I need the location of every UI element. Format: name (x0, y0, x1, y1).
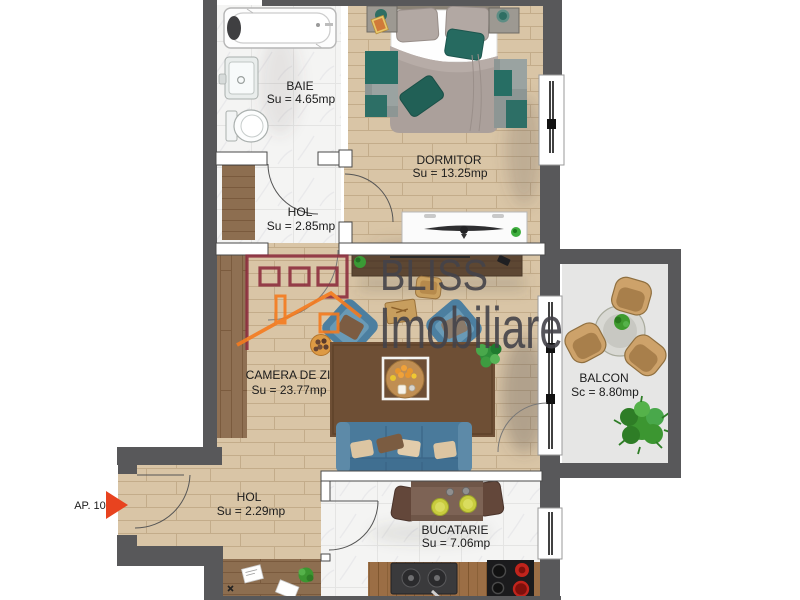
svg-text:Su = 2.85mp: Su = 2.85mp (267, 219, 336, 233)
svg-text:BAIE: BAIE (286, 79, 313, 93)
svg-text:Su = 2.29mp: Su = 2.29mp (217, 504, 286, 518)
svg-text:Su = 4.65mp: Su = 4.65mp (267, 92, 336, 106)
svg-text:CAMERA DE ZI: CAMERA DE ZI (246, 368, 331, 382)
svg-text:Su = 13.25mp: Su = 13.25mp (412, 166, 487, 180)
svg-text:Sc = 8.80mp: Sc = 8.80mp (571, 385, 639, 399)
svg-text:HOL: HOL (288, 205, 313, 219)
svg-text:HOL: HOL (237, 490, 262, 504)
svg-text:BUCATARIE: BUCATARIE (422, 523, 489, 537)
svg-text:BALCON: BALCON (579, 371, 628, 385)
svg-text:DORMITOR: DORMITOR (416, 153, 481, 167)
svg-text:Su = 23.77mp: Su = 23.77mp (251, 383, 326, 397)
svg-text:BLISS: BLISS (380, 251, 488, 300)
svg-text:AP. 10: AP. 10 (74, 500, 106, 512)
svg-text:Imobiliare: Imobiliare (379, 296, 563, 361)
svg-text:Su = 7.06mp: Su = 7.06mp (422, 536, 491, 550)
